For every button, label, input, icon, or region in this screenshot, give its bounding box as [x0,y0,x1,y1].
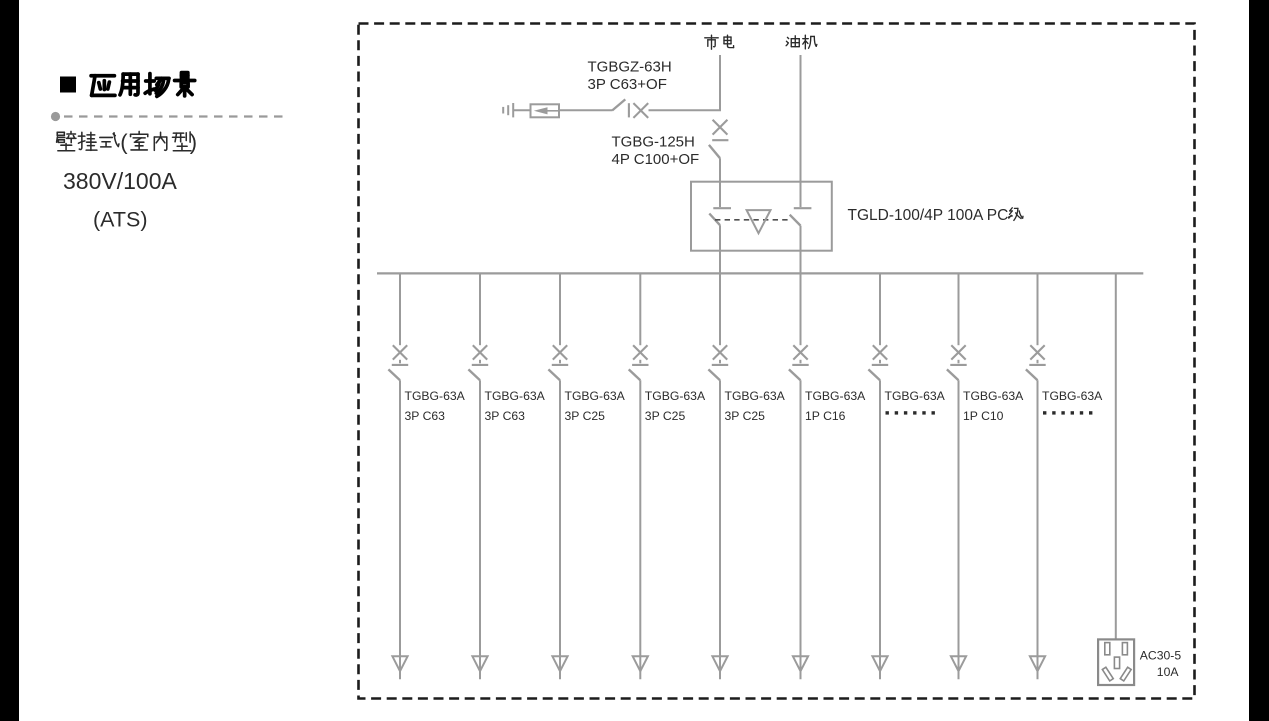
svg-text:10A: 10A [1157,665,1180,679]
svg-text:4P C100+OF: 4P C100+OF [612,151,700,168]
svg-text:TGBGZ-63H: TGBGZ-63H [588,59,672,76]
svg-text:TGBG-63A: TGBG-63A [565,389,626,403]
svg-text:3P C25: 3P C25 [725,409,766,423]
svg-text:TGBG-63A: TGBG-63A [485,389,546,403]
svg-text:TGBG-63A: TGBG-63A [645,389,706,403]
svg-text:TGBG-63A: TGBG-63A [725,389,786,403]
svg-text:3P C63+OF: 3P C63+OF [588,76,667,93]
svg-text:TGBG-125H: TGBG-125H [612,134,695,151]
svg-text:): ) [190,130,197,155]
svg-text:(ATS): (ATS) [93,208,148,232]
svg-text:TGBG-63A: TGBG-63A [1042,389,1103,403]
svg-text:TGLD-100/4P 100A PC: TGLD-100/4P 100A PC [848,207,1009,224]
svg-text:1P C10: 1P C10 [963,409,1004,423]
svg-text:380V/100A: 380V/100A [63,168,177,194]
svg-text:1P C16: 1P C16 [805,409,846,423]
svg-text:3P C25: 3P C25 [565,409,606,423]
svg-text:(: ( [120,130,128,155]
svg-text:TGBG-63A: TGBG-63A [885,389,946,403]
svg-text:3P C63: 3P C63 [485,409,526,423]
svg-text:TGBG-63A: TGBG-63A [805,389,866,403]
svg-text:3P C63: 3P C63 [405,409,446,423]
svg-text:3P C25: 3P C25 [645,409,686,423]
svg-text:TGBG-63A: TGBG-63A [405,389,466,403]
svg-text:AC30-5: AC30-5 [1140,649,1182,663]
svg-text:TGBG-63A: TGBG-63A [963,389,1024,403]
